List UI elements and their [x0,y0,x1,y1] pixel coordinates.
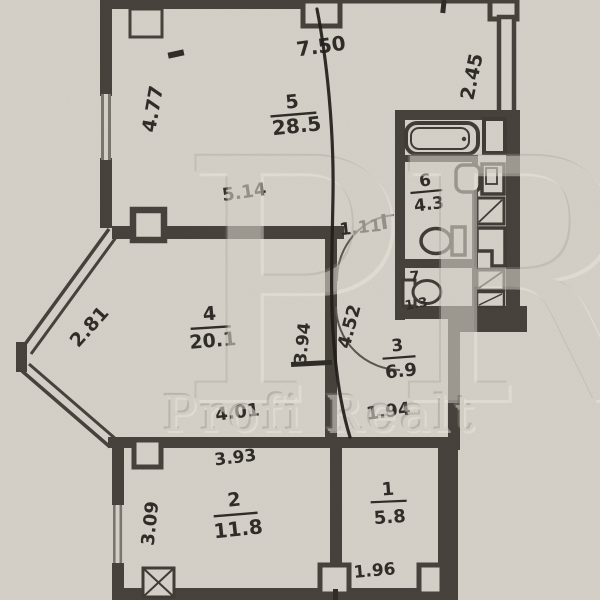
floor-plan-scan: 5 28.5 6 4.3 7 1.3 4 20.1 3 6.9 2 11.8 [0,0,600,600]
paper-grain-overlay [0,0,600,600]
floor-plan: 5 28.5 6 4.3 7 1.3 4 20.1 3 6.9 2 11.8 [0,0,600,600]
